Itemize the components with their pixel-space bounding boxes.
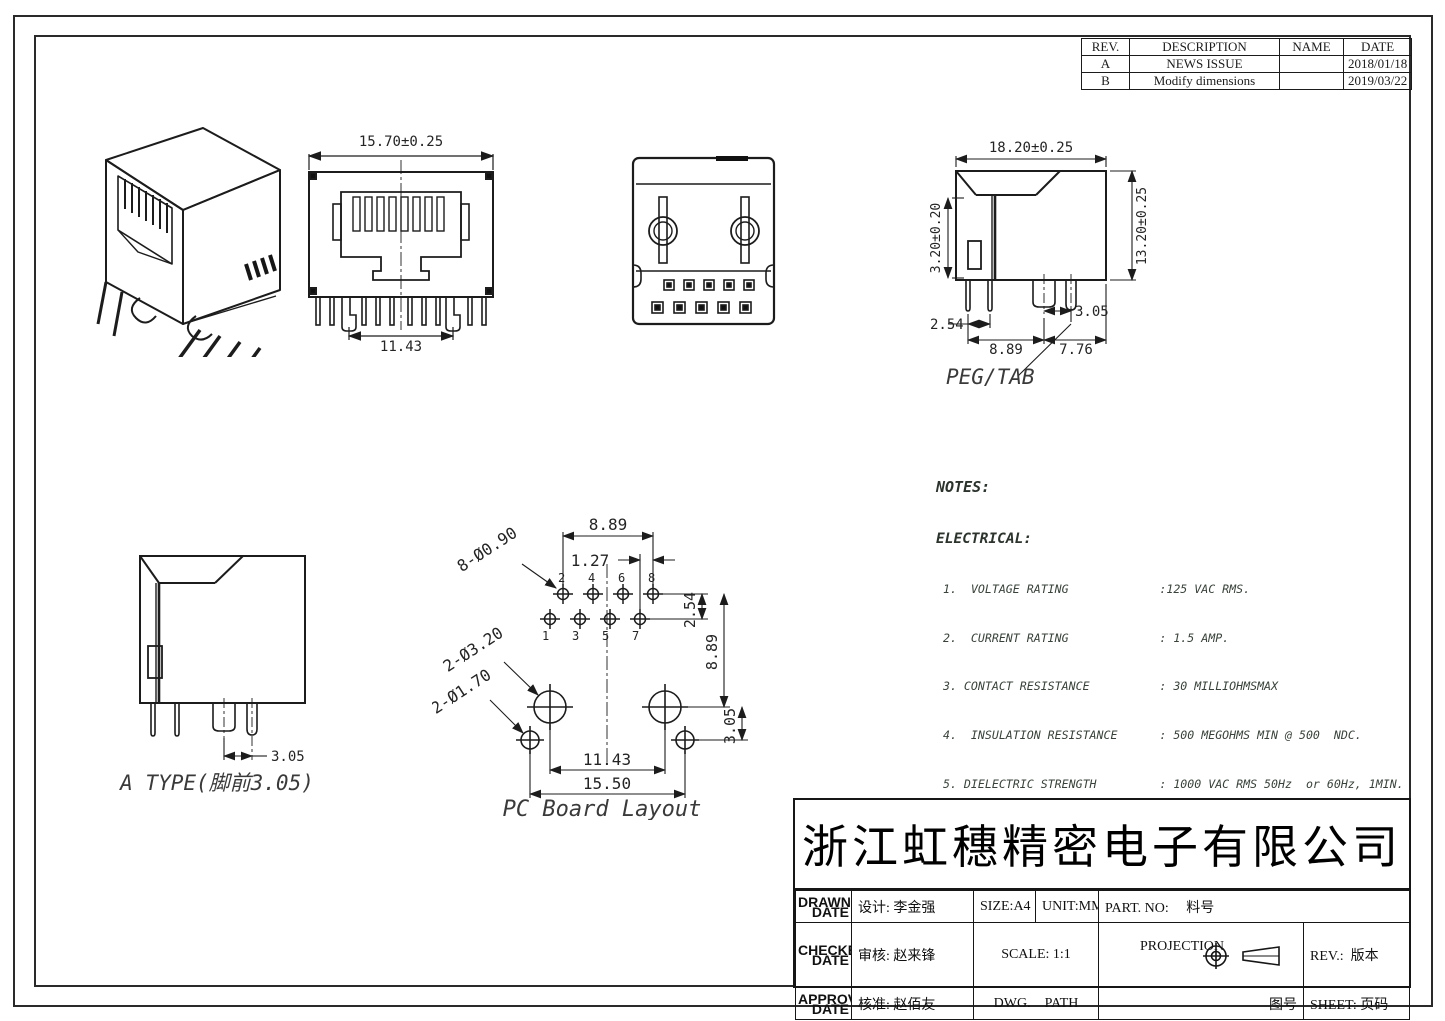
notes-title: NOTES: (936, 478, 1424, 497)
a-type-legs (151, 703, 257, 736)
dwg-cell: DWG. PATH (974, 988, 1099, 1020)
svg-text:2: 2 (558, 571, 565, 585)
a-type-dimensions (224, 738, 267, 760)
pcb-layout-view: 8.89 1.27 8-Ø0.90 2-Ø3.20 2-Ø1.70 2.54 8… (432, 502, 757, 820)
projection-cell: PROJECTION (1099, 923, 1304, 988)
rev-cell: REV.: 版本 (1304, 923, 1410, 988)
note-line: 5. DIELECTRIC STRENGTH : 1000 VAC RMS 50… (936, 776, 1424, 792)
approver-cell: 核准: 赵佰友 (852, 988, 974, 1020)
description-value: Modify dimensions (1130, 73, 1280, 90)
pcb-peg-span-dim: 11.43 (583, 750, 631, 769)
note-line: 2. CURRENT RATING : 1.5 AMP. (936, 630, 1424, 646)
revision-table: REV. DESCRIPTION NAME DATE A NEWS ISSUE … (1081, 38, 1412, 90)
side-peg-left-dim: 8.89 (989, 342, 1023, 358)
unit-cell: UNIT:MM. (1036, 891, 1099, 923)
pcb-pin-holes (540, 584, 663, 629)
date-col-header: DATE (1344, 39, 1412, 56)
rear-contact-holes (652, 280, 754, 313)
peg-tab-label: PEG/TAB (946, 365, 1035, 389)
front-view: 15.70±0.25 11.43 (296, 130, 508, 352)
a-type-body (140, 556, 305, 760)
revision-header-row: REV. DESCRIPTION NAME DATE (1082, 39, 1412, 56)
checked-label-cell: CHECKED/DATE (796, 923, 852, 988)
side-body (956, 171, 1106, 318)
designer-cell: 设计: 李金强 (852, 891, 974, 923)
isometric-body (98, 128, 280, 357)
name-value (1280, 73, 1344, 90)
note-line: 3. CONTACT RESISTANCE : 30 MILLIOHMSMAX (936, 678, 1424, 694)
pcb-row-gap-dim: 2.54 (681, 592, 699, 628)
side-height-dim: 13.20±0.25 (1135, 187, 1150, 265)
side-peg-dim: 3.05 (1075, 304, 1109, 320)
pcb-pin-numbers: 2 4 6 8 1 3 5 7 (542, 571, 655, 643)
note-line: 1. VOLTAGE RATING :125 VAC RMS. (936, 581, 1424, 597)
drawing-sheet: REV. DESCRIPTION NAME DATE A NEWS ISSUE … (0, 0, 1445, 1021)
name-value (1280, 56, 1344, 73)
description-value: NEWS ISSUE (1130, 56, 1280, 73)
side-peg-right-dim: 7.76 (1059, 342, 1093, 358)
front-width-dim: 15.70±0.25 (359, 134, 443, 150)
side-slot-dim: 3.20±0.20 (929, 203, 944, 273)
svg-text:3: 3 (572, 629, 579, 643)
svg-text:5: 5 (602, 629, 609, 643)
a-type-label: A TYPE(脚前3.05) (118, 771, 314, 795)
drawing-no-cell: 图号 (1099, 988, 1304, 1020)
title-block-table: DRAWN/DATE 设计: 李金强 SIZE:A4 UNIT:MM. PART… (795, 890, 1410, 1020)
side-width-dim: 18.20±0.25 (989, 140, 1073, 156)
side-legs-dim: 2.54 (930, 317, 964, 333)
svg-text:4: 4 (588, 571, 595, 585)
revision-row-b: B Modify dimensions 2019/03/22 (1082, 73, 1412, 90)
approved-label-cell: APPROVED/DATE (796, 988, 852, 1020)
side-view: 18.20±0.25 3.20±0.20 13.20±0.25 2.54 8.8… (918, 138, 1220, 400)
pcb-peg-drop-dim: 8.89 (703, 634, 721, 670)
scale-cell: SCALE: 1:1 (974, 923, 1099, 988)
revision-row-a: A NEWS ISSUE 2018/01/18 (1082, 56, 1412, 73)
shield-vent-slots (246, 255, 275, 280)
svg-text:7: 7 (632, 629, 639, 643)
drawn-label-cell: DRAWN/DATE (796, 891, 852, 923)
pcb-hole-dia-label: 2-Ø1.70 (432, 665, 494, 718)
pcb-hole-span-dim: 15.50 (583, 774, 631, 793)
note-line: 4. INSULATION RESISTANCE : 500 MEGOHMS M… (936, 727, 1424, 743)
description-col-header: DESCRIPTION (1130, 39, 1280, 56)
electrical-heading: ELECTRICAL: (936, 530, 1424, 549)
svg-text:6: 6 (618, 571, 625, 585)
svg-text:8: 8 (648, 571, 655, 585)
rear-view (628, 153, 780, 331)
company-name: 浙江虹穗精密电子有限公司 (795, 800, 1409, 890)
pcb-hole-drop-dim: 3.05 (721, 708, 739, 744)
sheet-cell: SHEET: 页码 (1304, 988, 1410, 1020)
rev-value: A (1082, 56, 1130, 73)
pcb-pin-dia-label: 8-Ø0.90 (454, 523, 521, 576)
front-pins-dim: 11.43 (380, 339, 422, 352)
projection-angle-icon (1203, 943, 1279, 969)
rear-body (633, 156, 774, 324)
date-value: 2019/03/22 (1344, 73, 1412, 90)
rev-value: B (1082, 73, 1130, 90)
a-type-peg-dim: 3.05 (271, 749, 305, 765)
checker-cell: 审核: 赵来锋 (852, 923, 974, 988)
name-col-header: NAME (1280, 39, 1344, 56)
part-no-cell: PART. NO: 料号 (1099, 891, 1410, 923)
svg-text:1: 1 (542, 629, 549, 643)
pcb-peg-holes (516, 684, 699, 754)
pcb-peg-dia-label: 2-Ø3.20 (440, 623, 507, 676)
title-block: 浙江虹穗精密电子有限公司 DRAWN/DATE 设计: 李金强 SIZE:A4 … (793, 798, 1411, 988)
pcb-pin-span-dim: 8.89 (589, 515, 628, 534)
a-type-view: 3.05 A TYPE(脚前3.05) (95, 538, 347, 800)
pcb-layout-title: PC Board Layout (503, 797, 702, 820)
size-cell: SIZE:A4 (974, 891, 1036, 923)
rev-col-header: REV. (1082, 39, 1130, 56)
date-value: 2018/01/18 (1344, 56, 1412, 73)
isometric-view (48, 112, 298, 357)
side-legs (966, 280, 1076, 311)
pcb-pin-offset-dim: 1.27 (571, 551, 610, 570)
